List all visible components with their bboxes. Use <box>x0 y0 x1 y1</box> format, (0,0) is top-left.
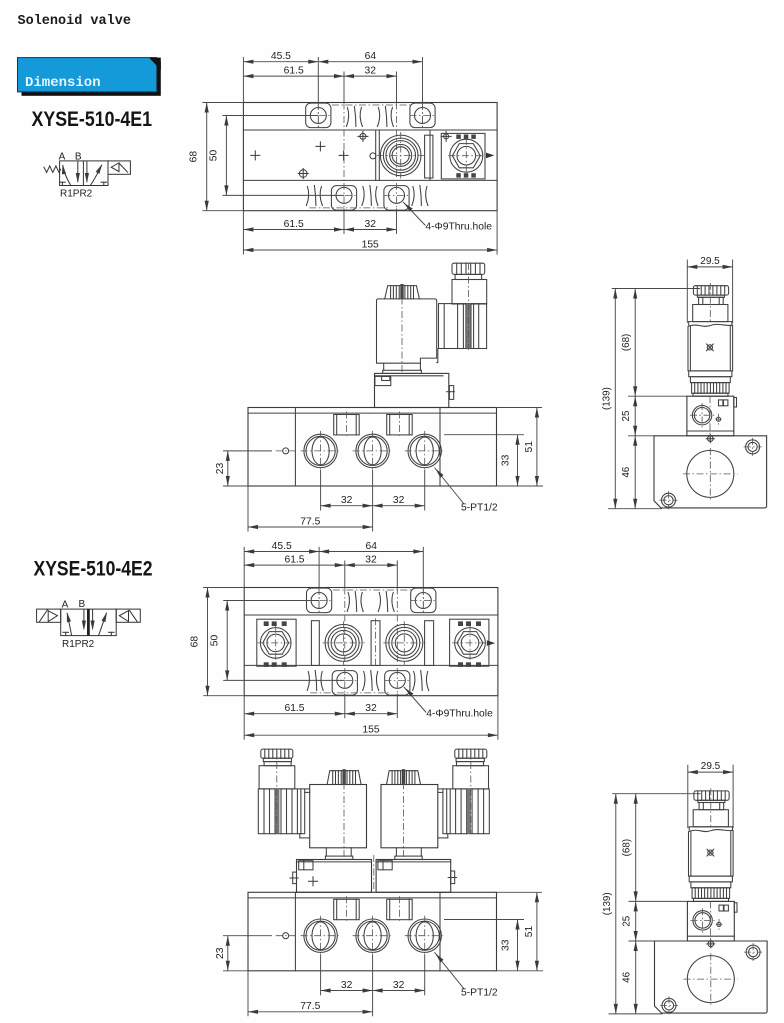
svg-text:A: A <box>62 600 69 611</box>
svg-text:XYSE-510-4E2: XYSE-510-4E2 <box>34 557 153 580</box>
svg-text:XYSE-510-4E1: XYSE-510-4E1 <box>32 108 153 131</box>
svg-text:A: A <box>59 152 66 163</box>
svg-text:B: B <box>75 152 82 163</box>
svg-text:R1PR2: R1PR2 <box>60 188 93 199</box>
svg-text:R1PR2: R1PR2 <box>62 639 95 650</box>
svg-text:Solenoid valve: Solenoid valve <box>18 14 131 29</box>
svg-text:B: B <box>78 599 85 610</box>
svg-text:Dimension: Dimension <box>25 75 101 91</box>
